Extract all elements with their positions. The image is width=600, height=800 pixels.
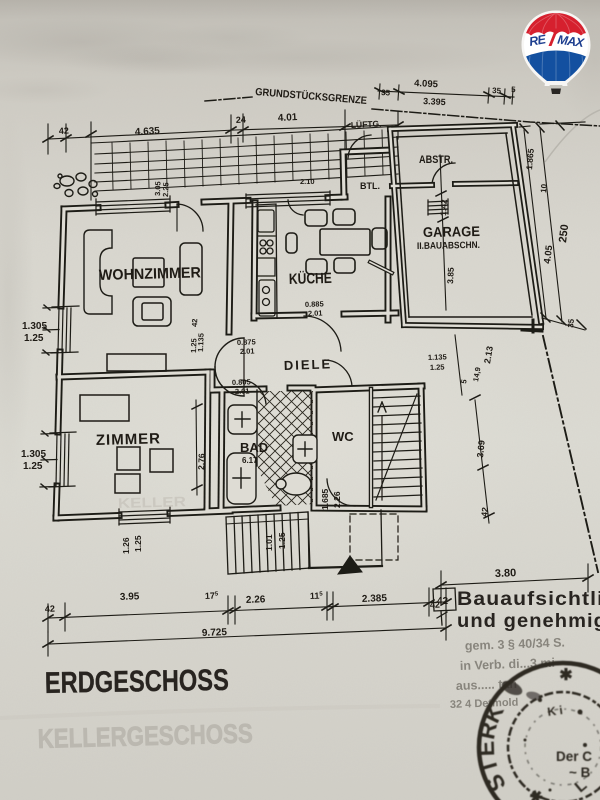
svg-text:1.25: 1.25 xyxy=(277,532,287,549)
svg-text:2.01: 2.01 xyxy=(308,308,323,318)
svg-text:und genehmig: und genehmig xyxy=(457,611,600,632)
svg-text:2.01: 2.01 xyxy=(240,346,255,356)
svg-text:35: 35 xyxy=(566,318,576,328)
svg-text:II.BAUABSCHN.: II.BAUABSCHN. xyxy=(417,240,480,252)
svg-text:4.635: 4.635 xyxy=(135,126,161,138)
svg-text:1.865: 1.865 xyxy=(524,148,536,170)
svg-text:ABSTR.: ABSTR. xyxy=(419,154,453,166)
svg-text:0.805: 0.805 xyxy=(232,377,251,387)
svg-text:2.26: 2.26 xyxy=(246,594,266,606)
svg-text:3.80: 3.80 xyxy=(495,567,517,580)
svg-text:1.25: 1.25 xyxy=(23,461,43,472)
svg-text:KÜCHE: KÜCHE xyxy=(289,270,332,288)
svg-text:3.69: 3.69 xyxy=(475,440,487,458)
svg-text:K i: K i xyxy=(546,703,563,719)
svg-text:Der C: Der C xyxy=(556,749,592,764)
svg-text:2.385: 2.385 xyxy=(362,593,388,605)
svg-text:1.42: 1.42 xyxy=(438,199,449,216)
svg-text:9.725: 9.725 xyxy=(202,627,228,639)
svg-text:BTL.: BTL. xyxy=(360,181,380,191)
svg-text:0.875: 0.875 xyxy=(237,337,256,347)
svg-text:1.25: 1.25 xyxy=(189,338,199,353)
svg-text:Bauaufsichtlic: Bauaufsichtlic xyxy=(457,589,600,610)
svg-text:24: 24 xyxy=(236,114,247,125)
svg-text:3.95: 3.95 xyxy=(120,591,140,603)
svg-text:1.25: 1.25 xyxy=(133,535,143,552)
svg-text:2.01: 2.01 xyxy=(235,386,250,396)
svg-text:2.76: 2.76 xyxy=(196,453,207,470)
svg-text:KELLER: KELLER xyxy=(118,493,186,511)
svg-text:4.05: 4.05 xyxy=(542,244,555,264)
svg-text:3.395: 3.395 xyxy=(423,96,446,107)
svg-text:4.095: 4.095 xyxy=(414,78,439,90)
svg-text:250: 250 xyxy=(557,224,571,244)
svg-text:4.01: 4.01 xyxy=(278,112,298,124)
svg-text:DIELE: DIELE xyxy=(284,356,333,373)
svg-text:2.26: 2.26 xyxy=(332,491,342,508)
svg-text:1.305: 1.305 xyxy=(21,449,46,460)
svg-text:WOHNZIMMER: WOHNZIMMER xyxy=(99,264,202,284)
svg-text:1.305: 1.305 xyxy=(22,321,47,332)
svg-text:2.10: 2.10 xyxy=(300,177,315,186)
svg-text:42: 42 xyxy=(437,596,449,607)
svg-text:42: 42 xyxy=(479,506,490,517)
svg-text:1.26: 1.26 xyxy=(121,537,131,554)
svg-text:~ B: ~ B xyxy=(569,765,591,780)
svg-text:3.85: 3.85 xyxy=(445,267,456,284)
svg-text:1.25: 1.25 xyxy=(24,333,44,344)
svg-text:ERDGESCHOSS: ERDGESCHOSS xyxy=(45,664,230,700)
svg-text:10: 10 xyxy=(539,183,549,193)
svg-text:1.685: 1.685 xyxy=(320,488,330,510)
svg-text:6.17: 6.17 xyxy=(242,456,258,465)
svg-text:✱: ✱ xyxy=(559,667,572,684)
svg-text:GARAGE: GARAGE xyxy=(423,223,480,240)
svg-text:42: 42 xyxy=(59,125,70,136)
svg-text:2.25: 2.25 xyxy=(161,182,171,197)
svg-text:E: E xyxy=(473,740,500,756)
svg-text:0.885: 0.885 xyxy=(305,299,324,309)
svg-text:1.135: 1.135 xyxy=(428,352,447,362)
svg-text:WC: WC xyxy=(332,429,354,444)
svg-text:42: 42 xyxy=(45,604,55,614)
svg-text:1.25: 1.25 xyxy=(430,362,445,372)
svg-text:35: 35 xyxy=(492,86,502,95)
svg-text:LÜFTG.: LÜFTG. xyxy=(351,118,382,130)
svg-text:KELLERGESCHOSS: KELLERGESCHOSS xyxy=(37,718,253,754)
svg-text:42: 42 xyxy=(190,318,199,327)
svg-text:BAD: BAD xyxy=(240,440,268,455)
svg-text:ZIMMER: ZIMMER xyxy=(96,430,162,449)
svg-text:35: 35 xyxy=(381,88,391,97)
svg-text:1.01: 1.01 xyxy=(264,534,274,551)
